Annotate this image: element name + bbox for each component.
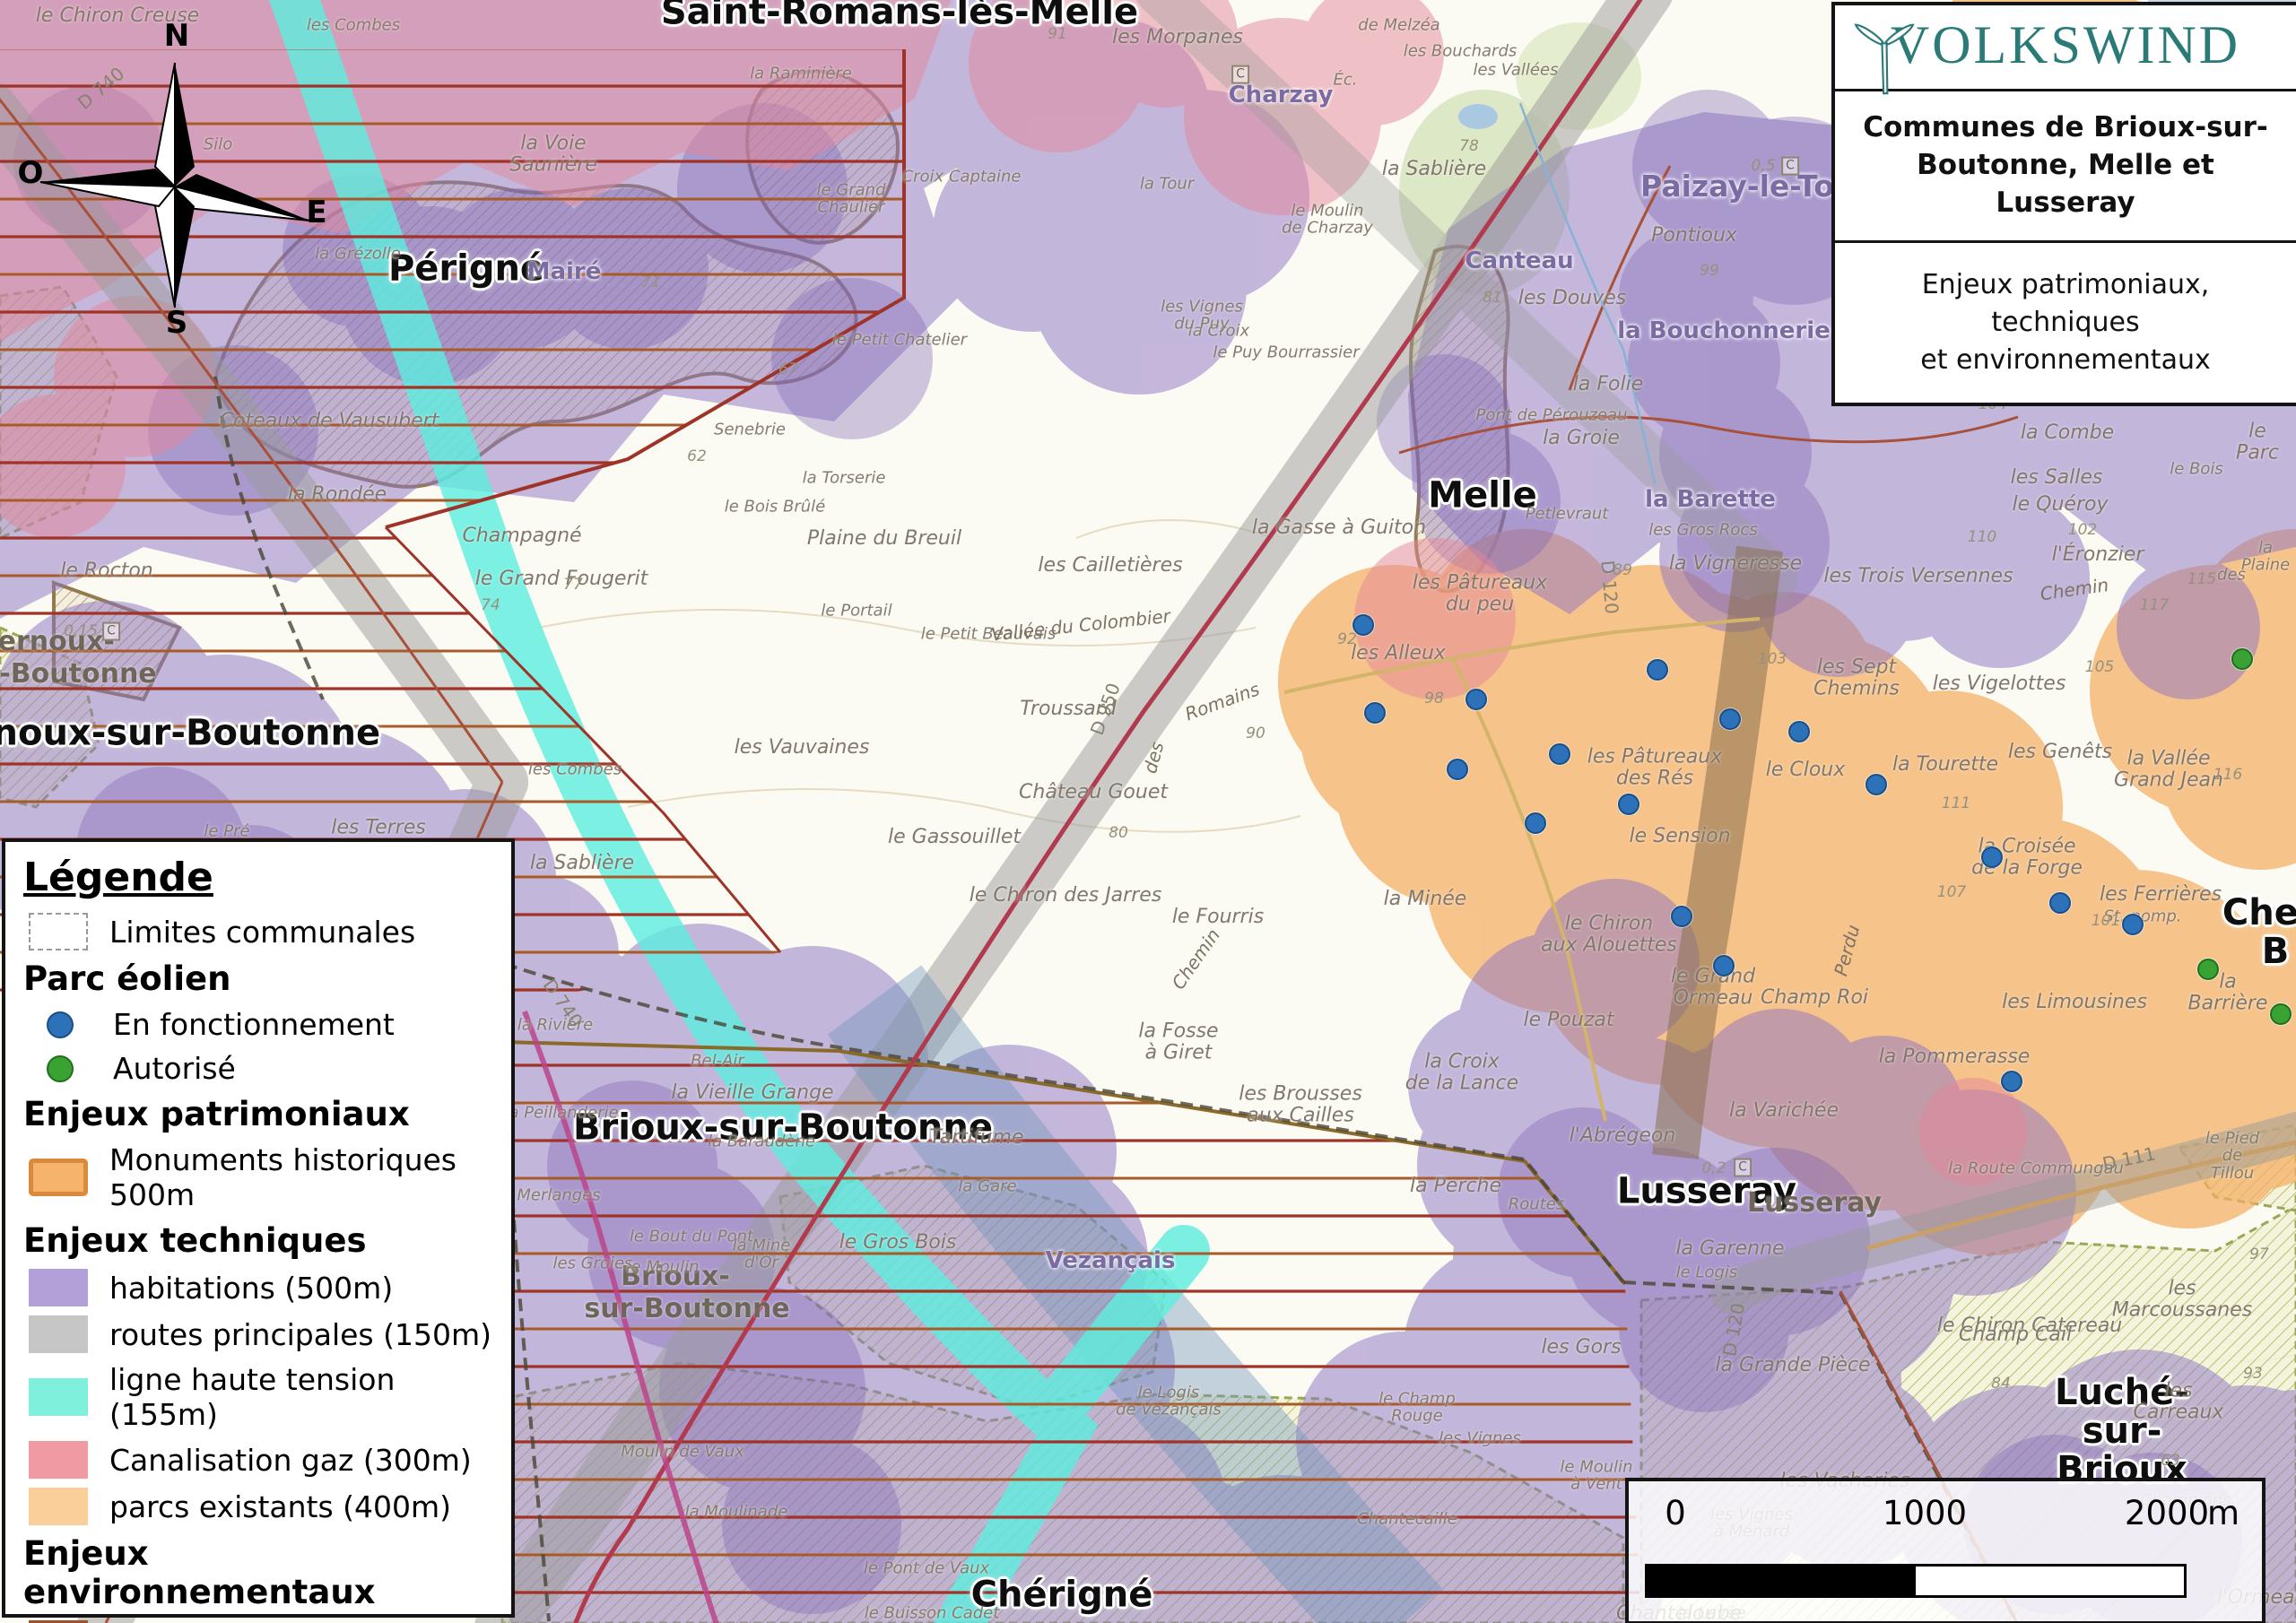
wind-turbine-operating-dot xyxy=(1647,659,1668,681)
scale-start-label: 0 xyxy=(1665,1494,1686,1532)
wind-turbine-operating-dot xyxy=(2122,914,2144,935)
wind-turbine-operating-dot xyxy=(1981,846,2003,868)
legend-item-label: ligne haute tension (155m) xyxy=(109,1362,511,1432)
wind-turbine-authorized-dot xyxy=(2270,1003,2292,1025)
legend-item-label: Monuments historiques 500m xyxy=(109,1142,511,1212)
legend-swatch-routes xyxy=(29,1315,88,1353)
scale-middle-label: 1000 xyxy=(1883,1494,1967,1532)
scale-bar-black-half xyxy=(1648,1567,1916,1595)
legend-item: Monuments historiques 500m xyxy=(29,1142,511,1212)
legend-item: routes principales (150m) xyxy=(29,1315,511,1353)
wind-turbine-authorized-dot xyxy=(2231,648,2253,670)
legend-swatch-monuments xyxy=(29,1159,88,1196)
wind-turbine-operating-dot xyxy=(1549,743,1570,765)
legend-item-label: parcs existants (400m) xyxy=(109,1489,451,1524)
legend-swatch-parcs xyxy=(29,1488,88,1525)
legend-sections: Parc éolienEn fonctionnementAutoriséEnje… xyxy=(23,959,511,1623)
volkswind-logo: VOLKSWIND xyxy=(1835,5,2296,91)
wind-turbine-authorized-dot xyxy=(2197,959,2219,980)
wind-turbine-operating-dot xyxy=(2049,892,2071,914)
legend-section-heading: Enjeux patrimoniaux xyxy=(23,1095,511,1133)
legend-heading: Légende xyxy=(23,855,511,900)
legend-item: parcs existants (400m) xyxy=(29,1488,511,1525)
wind-turbine-operating-dot xyxy=(1865,774,1887,795)
legend-swatch-habitations xyxy=(29,1269,88,1306)
scale-bar: 0 1000 2000 m xyxy=(1625,1478,2266,1623)
legend-item-limites: Limites communales xyxy=(29,913,511,950)
legend-item-label: Canalisation gaz (300m) xyxy=(109,1443,472,1478)
wind-turbine-operating-dot xyxy=(1364,702,1386,724)
scale-bar-graphic xyxy=(1645,1564,2187,1598)
wind-turbine-operating-dot xyxy=(1671,906,1692,927)
wind-turbine-operating-dot xyxy=(1447,759,1468,780)
legend-section-heading: Enjeux techniques xyxy=(23,1221,511,1260)
legend-section-heading: Enjeux environnementaux xyxy=(23,1534,511,1611)
legend-item-label: Limites communales xyxy=(109,915,415,950)
legend-item: habitations (500m) xyxy=(29,1269,511,1306)
title-block: VOLKSWIND Communes de Brioux-sur- Bouton… xyxy=(1831,2,2296,406)
legend-item-label: Autorisé xyxy=(113,1051,236,1086)
legend-item: ligne haute tension (155m) xyxy=(29,1362,511,1432)
wind-turbine-operating-dot xyxy=(1719,708,1741,730)
legend-swatch-dot-blue xyxy=(47,1011,74,1038)
wind-turbine-operating-dot xyxy=(1465,689,1487,710)
wind-turbine-operating-dot xyxy=(1352,614,1374,636)
map-title: Communes de Brioux-sur- Boutonne, Melle … xyxy=(1835,91,2296,243)
legend-swatch-hta xyxy=(29,1378,88,1416)
wind-turbine-operating-dot xyxy=(2001,1071,2022,1092)
legend-item-label: En fonctionnement xyxy=(113,1007,395,1042)
wind-turbine-operating-dot xyxy=(1713,955,1735,976)
legend-item-label: routes principales (150m) xyxy=(109,1317,491,1352)
legend-swatch-gaz xyxy=(29,1441,88,1479)
limites-swatch xyxy=(29,913,88,950)
legend-swatch-dot-green xyxy=(47,1055,74,1082)
legend-item: En fonctionnement xyxy=(29,1007,511,1042)
wind-turbine-operating-dot xyxy=(1788,721,1810,742)
map-page: Saint-Romans-lès-MellePérignéMelleVernou… xyxy=(0,0,2296,1623)
scale-end-label: 2000 xyxy=(2125,1494,2209,1532)
map-subtitle: Enjeux patrimoniaux, techniques et envir… xyxy=(1835,243,2296,403)
legend-item-label: habitations (500m) xyxy=(109,1271,393,1306)
legend-section-heading: Parc éolien xyxy=(23,959,511,998)
legend: Légende Limites communales Parc éolienEn… xyxy=(2,838,515,1618)
legend-item: Canalisation gaz (300m) xyxy=(29,1441,511,1479)
wind-turbine-operating-dot xyxy=(1525,812,1546,834)
wind-turbine-icon xyxy=(1835,5,1934,100)
wind-turbine-operating-dot xyxy=(1618,794,1639,815)
scale-unit-label: m xyxy=(2207,1494,2239,1532)
legend-item: Autorisé xyxy=(29,1051,511,1086)
